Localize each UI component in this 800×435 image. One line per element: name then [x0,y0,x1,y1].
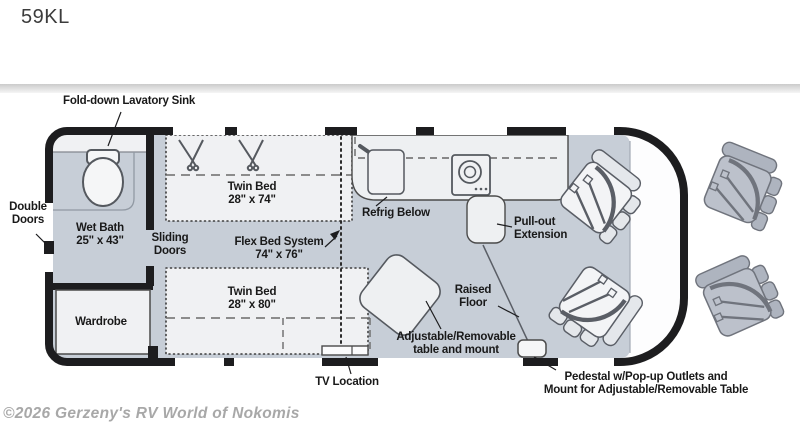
label-tv: TV Location [304,376,390,389]
label-twin-bed-bottom: Twin Bed 28" x 80" [200,286,304,313]
label-flex-bed: Flex Bed System 74" x 76" [230,236,328,263]
label-double-doors: Double Doors [4,201,52,228]
label-raised-floor: Raised Floor [447,284,499,311]
dealer-watermark: ©2026 Gerzeny's RV World of Nokomis [3,405,300,423]
label-refrig: Refrig Below [362,207,430,220]
cab-seat-top [699,140,791,232]
label-sliding-doors: Sliding Doors [147,232,193,259]
wall-segment [53,283,153,290]
label-twin-bed-top: Twin Bed 28" x 74" [200,181,304,208]
label-pedestal: Pedestal w/Pop-up Outlets and Mount for … [516,371,776,398]
sink-icon [368,150,404,194]
label-table: Adjustable/Removable table and mount [386,331,526,358]
pullout-extension-box [467,196,505,243]
label-wardrobe: Wardrobe [56,316,146,329]
toilet-icon [83,150,123,206]
label-pullout: Pull-out Extension [514,216,606,243]
floorplan-page: 59KL [0,0,800,435]
label-wet-bath: Wet Bath 25" x 43" [56,222,144,249]
stove-icon [452,155,490,195]
label-fold-down-sink: Fold-down Lavatory Sink [63,95,195,108]
tv-box [322,346,368,355]
cab-seat-bottom [694,248,787,342]
